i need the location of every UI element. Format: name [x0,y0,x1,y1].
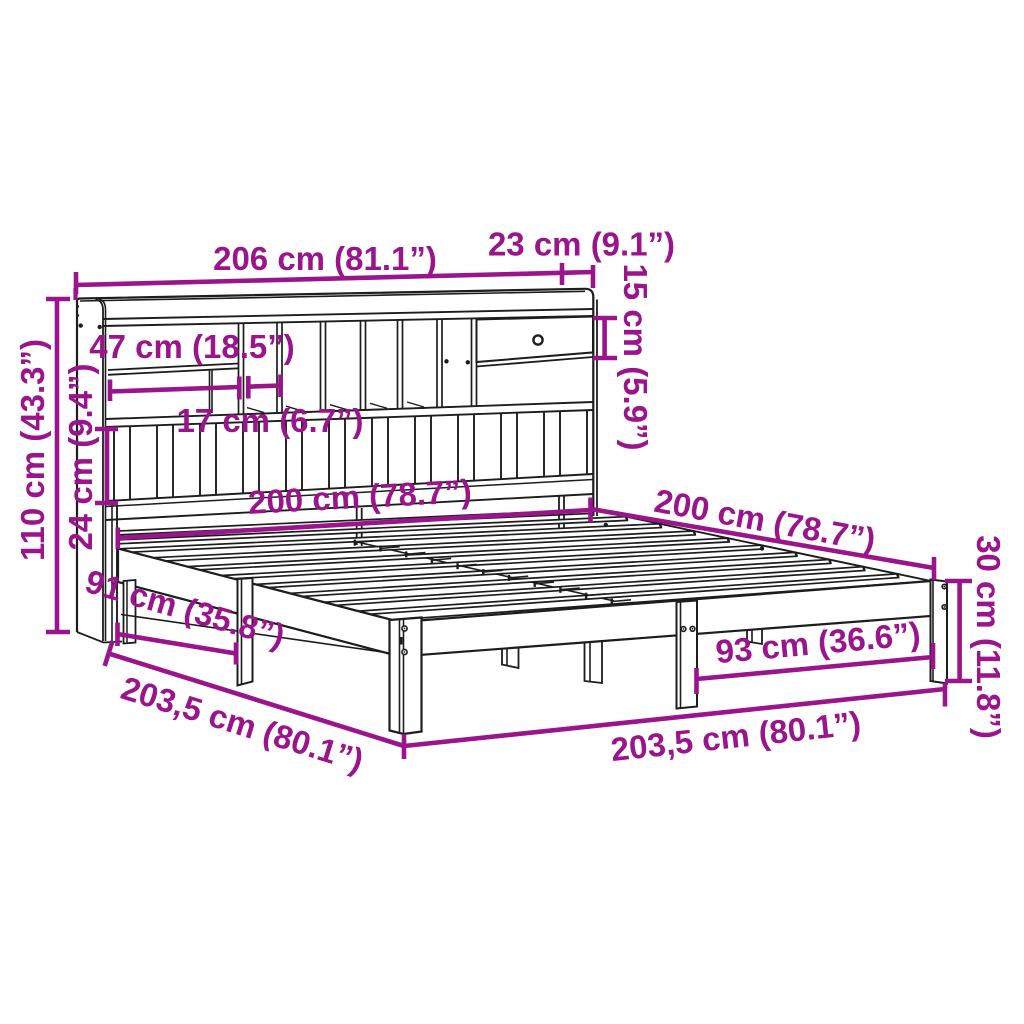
svg-text:206 cm (81.1”): 206 cm (81.1”) [213,240,437,277]
svg-text:15 cm (5.9”): 15 cm (5.9”) [617,263,654,450]
svg-text:23 cm (9.1”): 23 cm (9.1”) [488,226,675,263]
svg-text:17 cm (6.7”): 17 cm (6.7”) [176,402,363,439]
svg-text:30 cm (11.8”): 30 cm (11.8”) [970,535,1007,739]
svg-text:110 cm (43.3”): 110 cm (43.3”) [14,339,51,561]
svg-text:47 cm (18.5”): 47 cm (18.5”) [89,328,294,365]
svg-text:24 cm (9.4”): 24 cm (9.4”) [62,363,99,550]
